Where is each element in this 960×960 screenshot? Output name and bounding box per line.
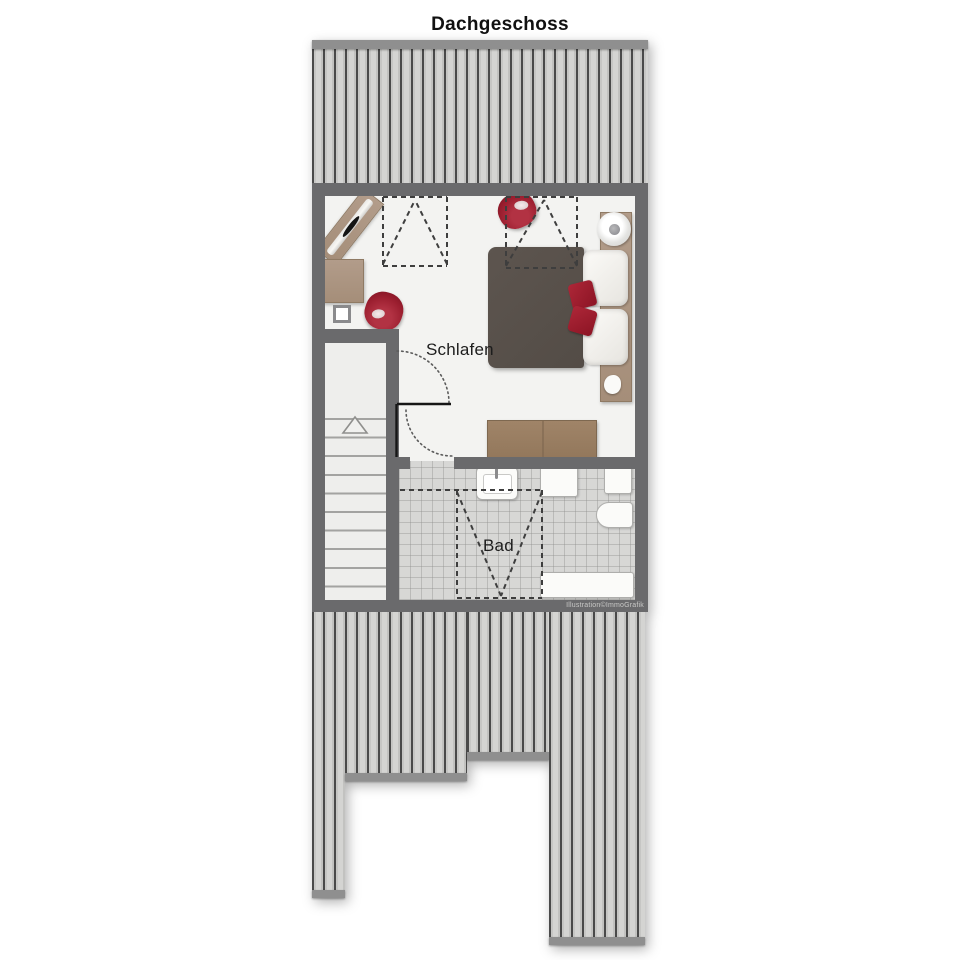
watermark: Illustration©ImmoGrafik bbox=[492, 600, 644, 611]
door-leaves bbox=[397, 404, 452, 457]
floor-plan-canvas: Dachgeschoss bbox=[0, 0, 960, 960]
roof-slope-dormer-right bbox=[506, 197, 577, 268]
bathroom-label: Bad bbox=[483, 536, 514, 556]
bedroom-label: Schlafen bbox=[426, 340, 494, 360]
door-swing-bathroom bbox=[406, 410, 452, 456]
roof-slope-bathroom bbox=[400, 490, 543, 598]
floor-plan: Schlafen Bad Illustration©ImmoGrafik bbox=[312, 40, 648, 945]
roof-slope-dormer-left bbox=[383, 197, 447, 266]
floor-title: Dachgeschoss bbox=[340, 14, 660, 36]
annotation-layer bbox=[312, 40, 648, 945]
